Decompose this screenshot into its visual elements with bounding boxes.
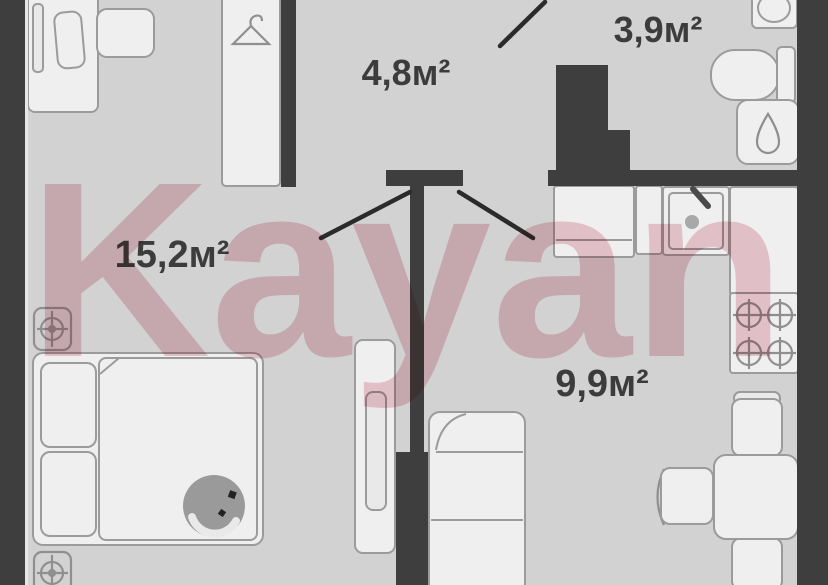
toilet-bowl	[711, 50, 779, 100]
hallway-area-label: 4,8м²	[362, 52, 451, 93]
right-wall	[797, 0, 828, 585]
central-wall-lower	[396, 452, 428, 585]
desk-chair	[54, 11, 86, 69]
dresser	[97, 9, 154, 57]
dining-table	[714, 455, 798, 539]
desk-side-panel	[33, 4, 43, 72]
tv	[366, 392, 386, 510]
chair-bottom	[732, 538, 782, 585]
chair-left	[661, 468, 713, 524]
watermark: Kayan	[28, 130, 786, 409]
left-wall	[0, 0, 25, 585]
toilet-tank	[777, 47, 795, 103]
floor-plan: 4,8м² 3,9м² 15,2м² 9,9м² Kayan	[0, 0, 828, 585]
sofa	[429, 412, 525, 585]
bathroom-area-label: 3,9м²	[614, 9, 703, 50]
pet-on-bed	[183, 475, 245, 537]
pillow-bottom	[41, 452, 96, 536]
